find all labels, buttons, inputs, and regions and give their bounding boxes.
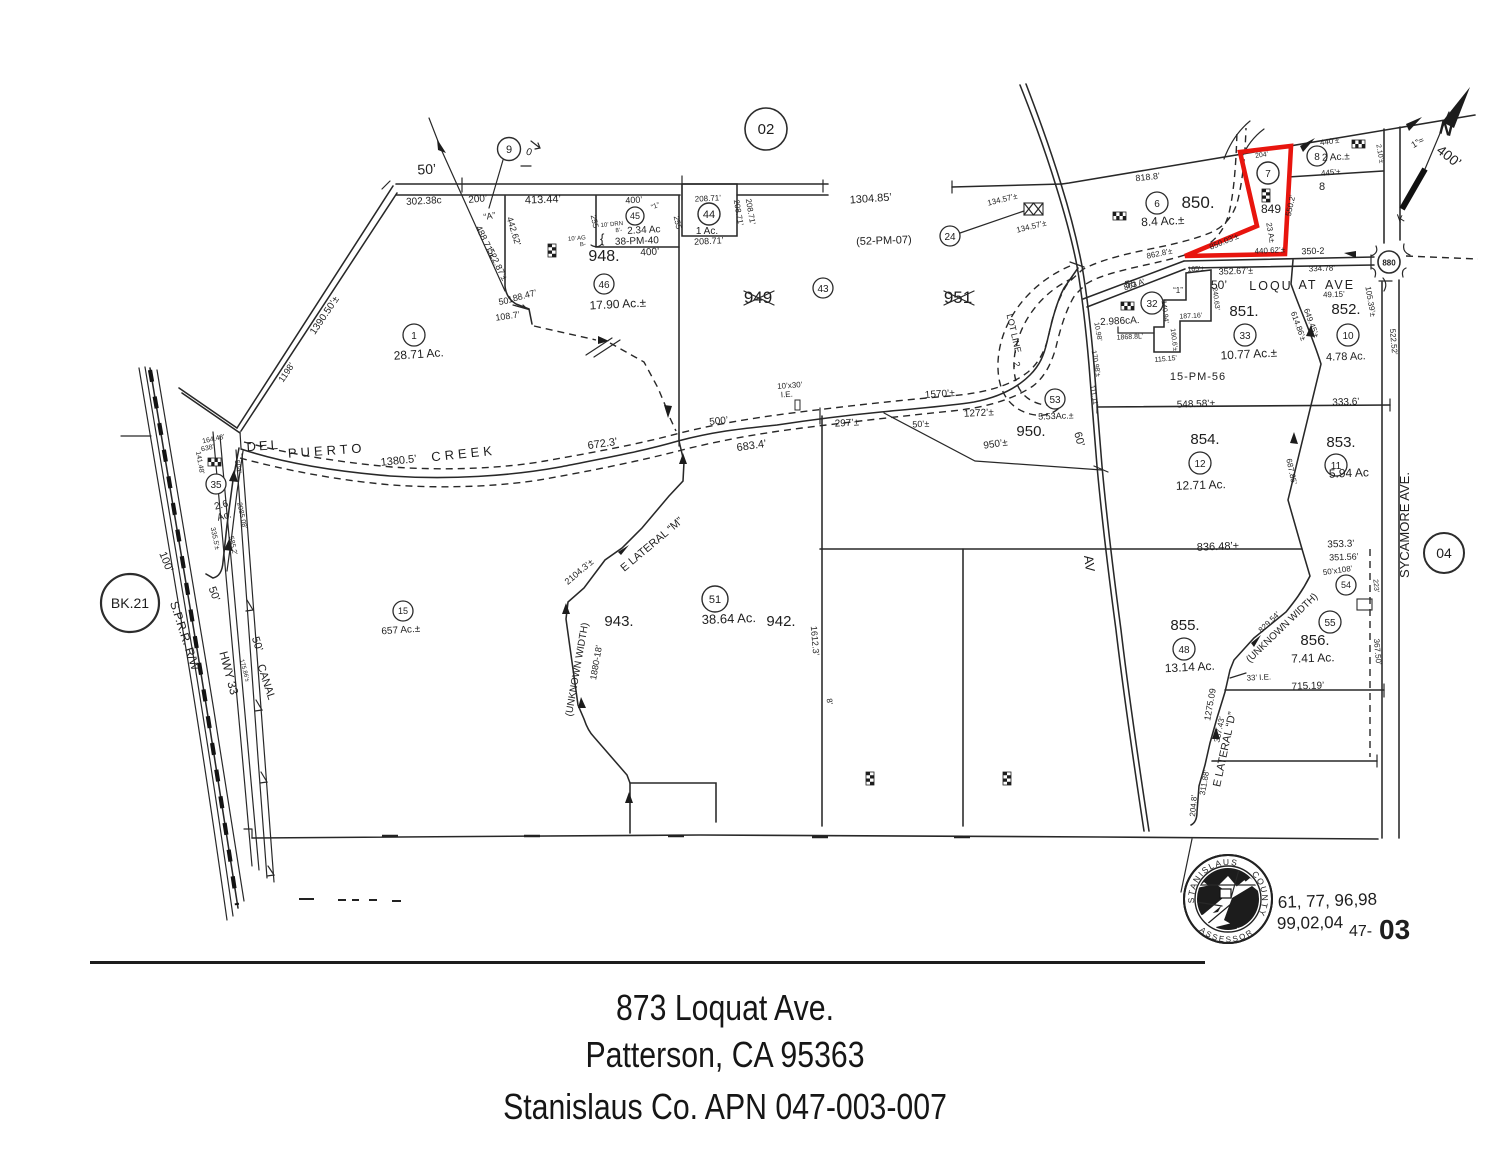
svg-text:12.71 Ac.: 12.71 Ac. bbox=[1176, 477, 1227, 493]
svg-text:548.58’±: 548.58’± bbox=[1177, 398, 1216, 410]
svg-text:200’: 200’ bbox=[468, 193, 488, 206]
svg-text:50’: 50’ bbox=[417, 161, 436, 178]
svg-text:35: 35 bbox=[210, 480, 222, 491]
svg-text:850.: 850. bbox=[1181, 193, 1214, 212]
svg-text:10.77 Ac.±: 10.77 Ac.± bbox=[1220, 346, 1278, 363]
svg-text:8’-: 8’- bbox=[615, 228, 622, 235]
svg-text:208.71’: 208.71’ bbox=[695, 193, 722, 203]
svg-text:855.: 855. bbox=[1170, 617, 1199, 634]
svg-text:187.16’: 187.16’ bbox=[1179, 312, 1203, 320]
svg-text:851.: 851. bbox=[1229, 303, 1258, 320]
svg-text:51: 51 bbox=[709, 594, 721, 606]
svg-text:32: 32 bbox=[1146, 299, 1158, 310]
svg-text:2 Ac.±: 2 Ac.± bbox=[1322, 151, 1351, 163]
svg-text:AV: AV bbox=[1081, 554, 1098, 572]
svg-text:I.E.: I.E. bbox=[781, 390, 794, 400]
svg-text:7: 7 bbox=[1265, 169, 1271, 180]
svg-text:47-: 47- bbox=[1349, 923, 1372, 940]
svg-text:333.6’: 333.6’ bbox=[1332, 397, 1360, 409]
svg-text:943.: 943. bbox=[604, 613, 633, 630]
svg-text:10: 10 bbox=[1342, 331, 1354, 342]
svg-text:5.53Ac.±: 5.53Ac.± bbox=[1038, 410, 1074, 421]
svg-text:45: 45 bbox=[630, 211, 640, 221]
svg-text:223’: 223’ bbox=[1371, 579, 1379, 593]
svg-text:950.: 950. bbox=[1016, 423, 1045, 440]
svg-text:352.67’±: 352.67’± bbox=[1218, 265, 1253, 276]
svg-text:5.94 Ac: 5.94 Ac bbox=[1329, 465, 1369, 480]
svg-text:948.: 948. bbox=[588, 248, 619, 265]
svg-text:8: 8 bbox=[1314, 152, 1320, 163]
svg-text:413.44’: 413.44’ bbox=[525, 193, 561, 206]
svg-text:24: 24 bbox=[944, 232, 956, 243]
svg-text:44: 44 bbox=[703, 209, 715, 221]
svg-text:400’: 400’ bbox=[625, 195, 643, 206]
svg-text:4.78 Ac.: 4.78 Ac. bbox=[1326, 350, 1366, 363]
svg-text:353.3’: 353.3’ bbox=[1327, 539, 1355, 551]
svg-text:54: 54 bbox=[1341, 580, 1351, 590]
svg-text:“A”: “A” bbox=[483, 210, 497, 222]
svg-text:99,02,04: 99,02,04 bbox=[1277, 913, 1344, 933]
svg-text:853.: 853. bbox=[1326, 434, 1355, 451]
svg-text:33: 33 bbox=[1239, 331, 1251, 342]
svg-text:LOQU: LOQU bbox=[1249, 279, 1292, 293]
svg-text:1272’±: 1272’± bbox=[964, 407, 995, 420]
svg-text:BK.21: BK.21 bbox=[111, 595, 149, 611]
svg-text:15: 15 bbox=[398, 606, 408, 616]
svg-text:854.: 854. bbox=[1190, 431, 1219, 448]
svg-text:350-2: 350-2 bbox=[1301, 246, 1324, 257]
svg-text:849: 849 bbox=[1261, 202, 1281, 216]
svg-text:AVE: AVE bbox=[1325, 278, 1355, 292]
svg-text:880: 880 bbox=[1382, 259, 1396, 268]
svg-text:48: 48 bbox=[1178, 645, 1190, 656]
svg-text:03: 03 bbox=[1379, 914, 1410, 945]
svg-text:55: 55 bbox=[1324, 618, 1336, 629]
svg-text:53: 53 bbox=[1049, 395, 1061, 406]
svg-text:856.: 856. bbox=[1300, 632, 1329, 649]
svg-text:33’ I.E.: 33’ I.E. bbox=[1246, 672, 1271, 682]
svg-text:8.4 Ac.±: 8.4 Ac.± bbox=[1141, 213, 1185, 229]
svg-text:715.19’: 715.19’ bbox=[1291, 680, 1324, 692]
svg-text:334.78’: 334.78’ bbox=[1309, 264, 1336, 274]
svg-text:400’: 400’ bbox=[640, 247, 659, 259]
svg-text:04: 04 bbox=[1436, 545, 1452, 561]
svg-text:(52-PM-07): (52-PM-07) bbox=[856, 234, 912, 248]
svg-text:46: 46 bbox=[598, 280, 610, 291]
svg-text:7.41 Ac.: 7.41 Ac. bbox=[1291, 650, 1335, 666]
svg-text:50’±: 50’± bbox=[912, 419, 930, 430]
svg-text:204.8’: 204.8’ bbox=[1188, 794, 1199, 817]
svg-text:{: { bbox=[600, 231, 605, 246]
svg-text:02: 02 bbox=[758, 121, 775, 138]
svg-text:942.: 942. bbox=[766, 613, 795, 630]
svg-text:500’: 500’ bbox=[709, 415, 729, 428]
svg-text:297’±: 297’± bbox=[834, 417, 859, 429]
svg-text:208.71’: 208.71’ bbox=[694, 235, 724, 247]
svg-text:1570’±: 1570’± bbox=[924, 388, 955, 401]
svg-text:50’: 50’ bbox=[498, 295, 512, 307]
svg-text:9: 9 bbox=[506, 144, 512, 156]
svg-text:DEL: DEL bbox=[246, 437, 281, 454]
svg-text:6: 6 bbox=[1154, 199, 1160, 210]
svg-text:15-PM-56: 15-PM-56 bbox=[1170, 371, 1226, 383]
svg-text:38.64 Ac.: 38.64 Ac. bbox=[701, 610, 756, 627]
svg-text:302.38c: 302.38c bbox=[406, 195, 442, 208]
svg-text:1868.8L’: 1868.8L’ bbox=[1117, 333, 1144, 341]
svg-text:445’±: 445’± bbox=[1321, 167, 1342, 178]
svg-text:“1”: “1” bbox=[1173, 286, 1183, 295]
svg-text:17.90 Ac.±: 17.90 Ac.± bbox=[589, 296, 647, 313]
svg-text:SYCAMORE AVE.: SYCAMORE AVE. bbox=[1397, 472, 1412, 578]
svg-text:B-: B- bbox=[580, 242, 587, 249]
svg-text:12: 12 bbox=[1194, 459, 1206, 470]
svg-text:836.48’±: 836.48’± bbox=[1197, 540, 1240, 553]
svg-text:440.62’±: 440.62’± bbox=[1254, 245, 1286, 256]
svg-text:1: 1 bbox=[411, 331, 417, 342]
svg-text:43: 43 bbox=[817, 284, 829, 295]
svg-text:61, 77, 96,98: 61, 77, 96,98 bbox=[1277, 890, 1377, 912]
svg-text:165’±: 165’± bbox=[1187, 266, 1205, 274]
svg-text:852.: 852. bbox=[1331, 301, 1360, 318]
svg-text:351.56’: 351.56’ bbox=[1329, 551, 1359, 562]
svg-text:8: 8 bbox=[1319, 181, 1325, 193]
svg-text:2.986cA.: 2.986cA. bbox=[1100, 315, 1140, 328]
svg-text:13.14 Ac.: 13.14 Ac. bbox=[1164, 659, 1215, 676]
svg-text:AT: AT bbox=[1298, 278, 1317, 292]
